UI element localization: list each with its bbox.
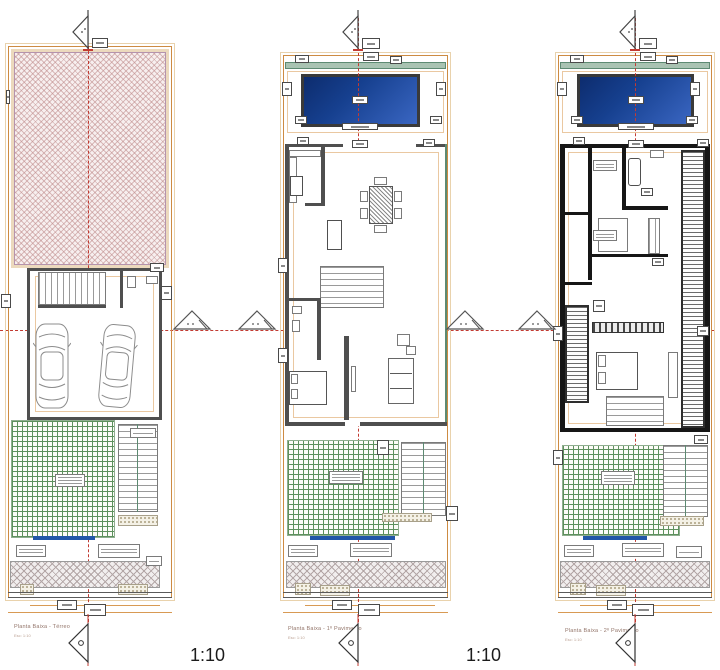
dimension-box [161, 286, 172, 300]
section-flag-icon [70, 10, 106, 54]
dimension-box [390, 56, 402, 64]
dimension-box [377, 440, 389, 455]
dimension-box [352, 140, 368, 148]
triangle-marker-icon [445, 309, 485, 331]
section-flag-icon [340, 10, 376, 54]
dimension-box [571, 116, 583, 124]
annotation-label [16, 545, 46, 557]
section-marker-icon [237, 309, 277, 331]
dimension-box [297, 137, 309, 145]
dimension-box [697, 326, 709, 336]
dimension-box [332, 600, 352, 610]
annotation-label [130, 428, 156, 438]
annotation-label [288, 545, 318, 557]
annotation-label [146, 556, 162, 566]
dimension-box [282, 82, 292, 96]
annotation-label [564, 545, 594, 557]
dimension-box [430, 116, 442, 124]
flag-marker-icon [340, 10, 376, 54]
dimension-box [446, 506, 458, 521]
dimension-box [342, 123, 378, 130]
section-cone-icon [338, 614, 378, 666]
dimension-box [423, 139, 435, 147]
annotations-layer [0, 0, 720, 670]
section-marker-icon [517, 309, 557, 331]
dimension-box [1, 294, 11, 308]
dimension-box [628, 96, 644, 104]
dimension-box [618, 123, 654, 130]
dimension-box [436, 82, 446, 96]
dimension-box [557, 82, 567, 96]
annotation-label [55, 474, 85, 487]
annotation-label [622, 543, 664, 557]
annotation-label [676, 546, 702, 558]
dimension-box [628, 140, 644, 148]
dimension-box [593, 300, 605, 312]
annotation-label [98, 544, 140, 558]
dimension-box [295, 116, 307, 124]
dimension-box [641, 188, 653, 196]
cone-marker-icon [338, 614, 378, 666]
dimension-box [278, 348, 288, 363]
annotation-label [593, 160, 617, 171]
dimension-box [652, 258, 664, 266]
annotation-label [350, 543, 392, 557]
dimension-box [150, 263, 164, 272]
dimension-box [278, 258, 288, 273]
dimension-box [666, 56, 678, 64]
annotation-label [601, 471, 635, 485]
triangle-marker-icon [237, 309, 277, 331]
dimension-box [690, 82, 700, 96]
section-flag-icon [617, 10, 653, 54]
annotation-label [593, 230, 617, 241]
dimension-box [697, 139, 709, 147]
triangle-marker-icon [172, 309, 212, 331]
flag-marker-icon [617, 10, 653, 54]
cone-marker-icon [615, 614, 655, 666]
annotation-label [329, 471, 363, 484]
dimension-box [553, 450, 563, 465]
architectural-sheet: Planta Baixa - Térreo Esc: 1:10 [0, 0, 720, 670]
dimension-box [352, 96, 368, 104]
section-cone-icon [68, 614, 108, 666]
dimension-box [6, 90, 10, 104]
dimension-box [573, 137, 585, 145]
section-marker-icon [445, 309, 485, 331]
section-cone-icon [615, 614, 655, 666]
flag-marker-icon [70, 10, 106, 54]
cone-marker-icon [68, 614, 108, 666]
dimension-box [686, 116, 698, 124]
dimension-box [570, 55, 584, 63]
section-marker-icon [172, 309, 212, 331]
dimension-box [694, 435, 708, 444]
dimension-box [57, 600, 77, 610]
triangle-marker-icon [517, 309, 557, 331]
dimension-box [295, 55, 309, 63]
dimension-box [607, 600, 627, 610]
